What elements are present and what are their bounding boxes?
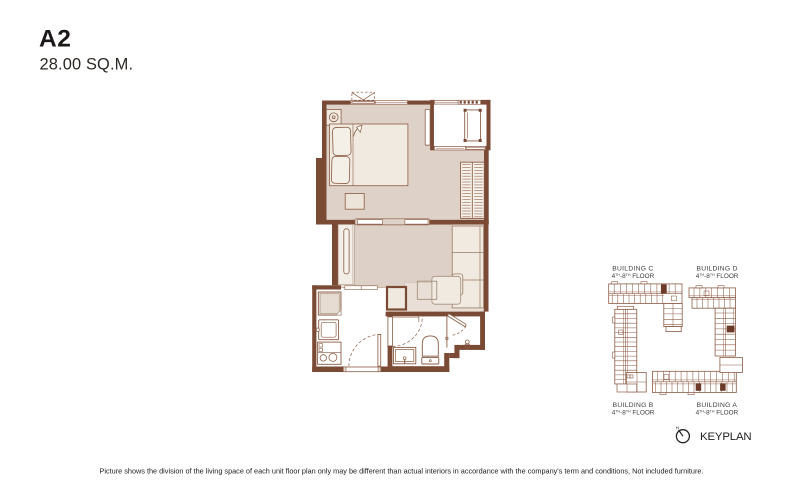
svg-text:28.00 SQ.M.: 28.00 SQ.M.	[40, 56, 134, 74]
svg-text:Picture shows the division of: Picture shows the division of the living…	[100, 466, 704, 475]
svg-text:BUILDING B: BUILDING B	[613, 402, 654, 409]
svg-text:A2: A2	[39, 26, 72, 53]
svg-text:KEYPLAN: KEYPLAN	[700, 431, 752, 443]
svg-text:BUILDING C: BUILDING C	[612, 265, 653, 272]
svg-text:BUILDING D: BUILDING D	[696, 265, 737, 272]
svg-text:BUILDING A: BUILDING A	[697, 402, 738, 409]
